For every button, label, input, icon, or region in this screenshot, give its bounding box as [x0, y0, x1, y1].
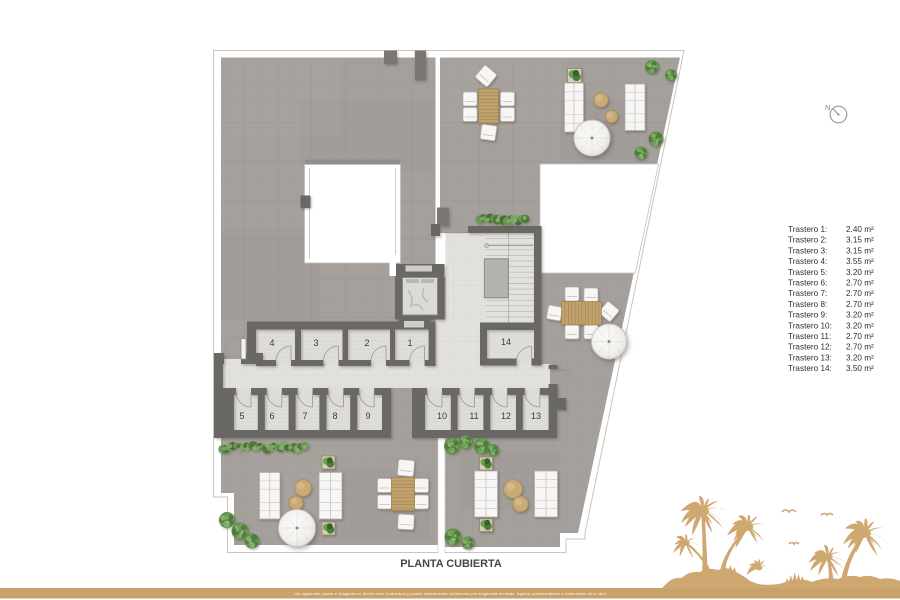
svg-text:2: 2 [364, 338, 369, 348]
svg-text:3.55 m²: 3.55 m² [846, 257, 874, 266]
svg-text:5: 5 [239, 411, 244, 421]
svg-text:Trastero 3:: Trastero 3: [788, 246, 827, 255]
svg-text:Los siguientes planos e imágen: Los siguientes planos e imágenes no tien… [294, 592, 607, 596]
svg-text:9: 9 [365, 411, 370, 421]
svg-text:Trastero 13:: Trastero 13: [788, 353, 832, 362]
svg-text:10: 10 [437, 411, 447, 421]
svg-text:3.20 m²: 3.20 m² [846, 268, 874, 277]
svg-text:N: N [825, 103, 830, 112]
svg-text:PLANTA CUBIERTA: PLANTA CUBIERTA [400, 558, 502, 570]
svg-text:Trastero 4:: Trastero 4: [788, 257, 827, 266]
svg-text:Trastero 5:: Trastero 5: [788, 268, 827, 277]
svg-text:14: 14 [501, 337, 511, 347]
svg-text:Trastero 6:: Trastero 6: [788, 279, 827, 288]
svg-text:Trastero 12:: Trastero 12: [788, 343, 832, 352]
svg-text:Trastero 7:: Trastero 7: [788, 289, 827, 298]
svg-text:12: 12 [501, 411, 511, 421]
svg-text:3.20 m²: 3.20 m² [846, 321, 874, 330]
svg-text:Trastero 9:: Trastero 9: [788, 311, 827, 320]
svg-text:Trastero 8:: Trastero 8: [788, 300, 827, 309]
svg-text:3.15 m²: 3.15 m² [846, 246, 874, 255]
svg-text:11: 11 [469, 411, 478, 421]
svg-text:13: 13 [531, 411, 541, 421]
svg-text:6: 6 [269, 411, 274, 421]
svg-text:Trastero 2:: Trastero 2: [788, 236, 827, 245]
svg-text:2.70 m²: 2.70 m² [846, 300, 874, 309]
svg-text:2.70 m²: 2.70 m² [846, 279, 874, 288]
svg-text:Trastero 14:: Trastero 14: [788, 364, 832, 373]
svg-text:Trastero 11:: Trastero 11: [788, 332, 831, 341]
svg-text:3.20 m²: 3.20 m² [846, 311, 874, 320]
svg-text:1: 1 [407, 338, 412, 348]
svg-text:4: 4 [269, 338, 274, 348]
svg-text:3: 3 [313, 338, 318, 348]
svg-text:Trastero 10:: Trastero 10: [788, 321, 832, 330]
svg-text:Trastero 1:: Trastero 1: [788, 225, 827, 234]
svg-text:2.70 m²: 2.70 m² [846, 289, 874, 298]
svg-text:7: 7 [302, 411, 307, 421]
svg-text:3.15 m²: 3.15 m² [846, 236, 874, 245]
svg-text:2.40 m²: 2.40 m² [846, 225, 874, 234]
svg-text:3.20 m²: 3.20 m² [846, 353, 874, 362]
svg-text:2.70 m²: 2.70 m² [846, 332, 874, 341]
svg-text:8: 8 [332, 411, 337, 421]
svg-text:3.50 m²: 3.50 m² [846, 364, 874, 373]
svg-text:2.70 m²: 2.70 m² [846, 343, 874, 352]
